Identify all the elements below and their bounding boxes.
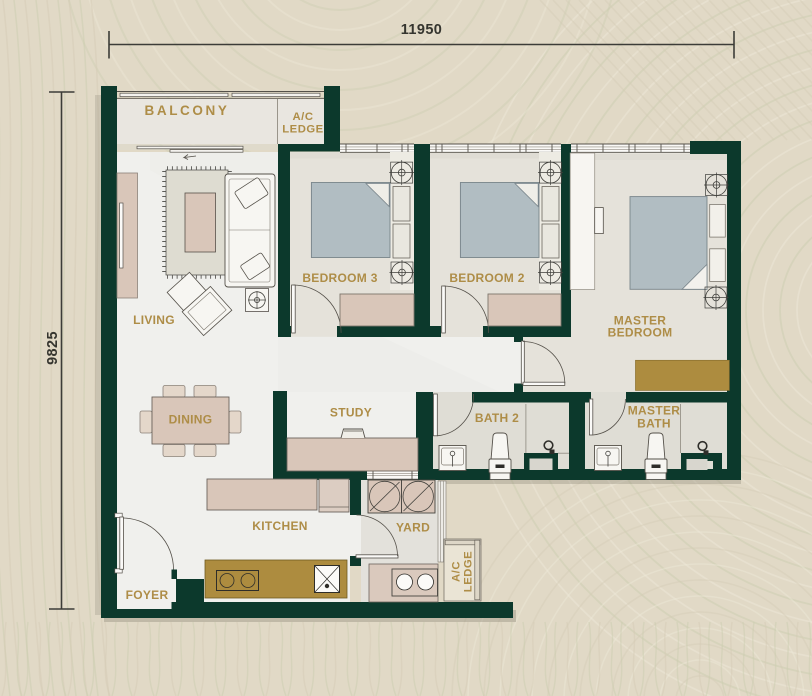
svg-text:LEDGE: LEDGE: [463, 551, 475, 592]
svg-text:MASTER: MASTER: [628, 404, 680, 418]
svg-text:BATH 2: BATH 2: [475, 411, 519, 425]
svg-text:9825: 9825: [45, 331, 61, 365]
svg-text:KITCHEN: KITCHEN: [252, 519, 307, 533]
svg-text:11950: 11950: [401, 22, 443, 38]
svg-text:BEDROOM 3: BEDROOM 3: [302, 271, 377, 285]
svg-text:LEDGE: LEDGE: [282, 124, 323, 136]
svg-text:BEDROOM 2: BEDROOM 2: [449, 271, 524, 285]
svg-text:A/C: A/C: [293, 111, 314, 123]
svg-text:BALCONY: BALCONY: [145, 103, 230, 118]
svg-text:YARD: YARD: [396, 521, 430, 535]
svg-text:BATH: BATH: [637, 417, 671, 431]
svg-text:FOYER: FOYER: [126, 588, 169, 602]
svg-text:A/C: A/C: [451, 561, 463, 582]
svg-text:BEDROOM: BEDROOM: [608, 326, 673, 340]
svg-text:LIVING: LIVING: [133, 313, 175, 327]
svg-text:STUDY: STUDY: [330, 406, 372, 420]
svg-text:DINING: DINING: [169, 413, 213, 427]
